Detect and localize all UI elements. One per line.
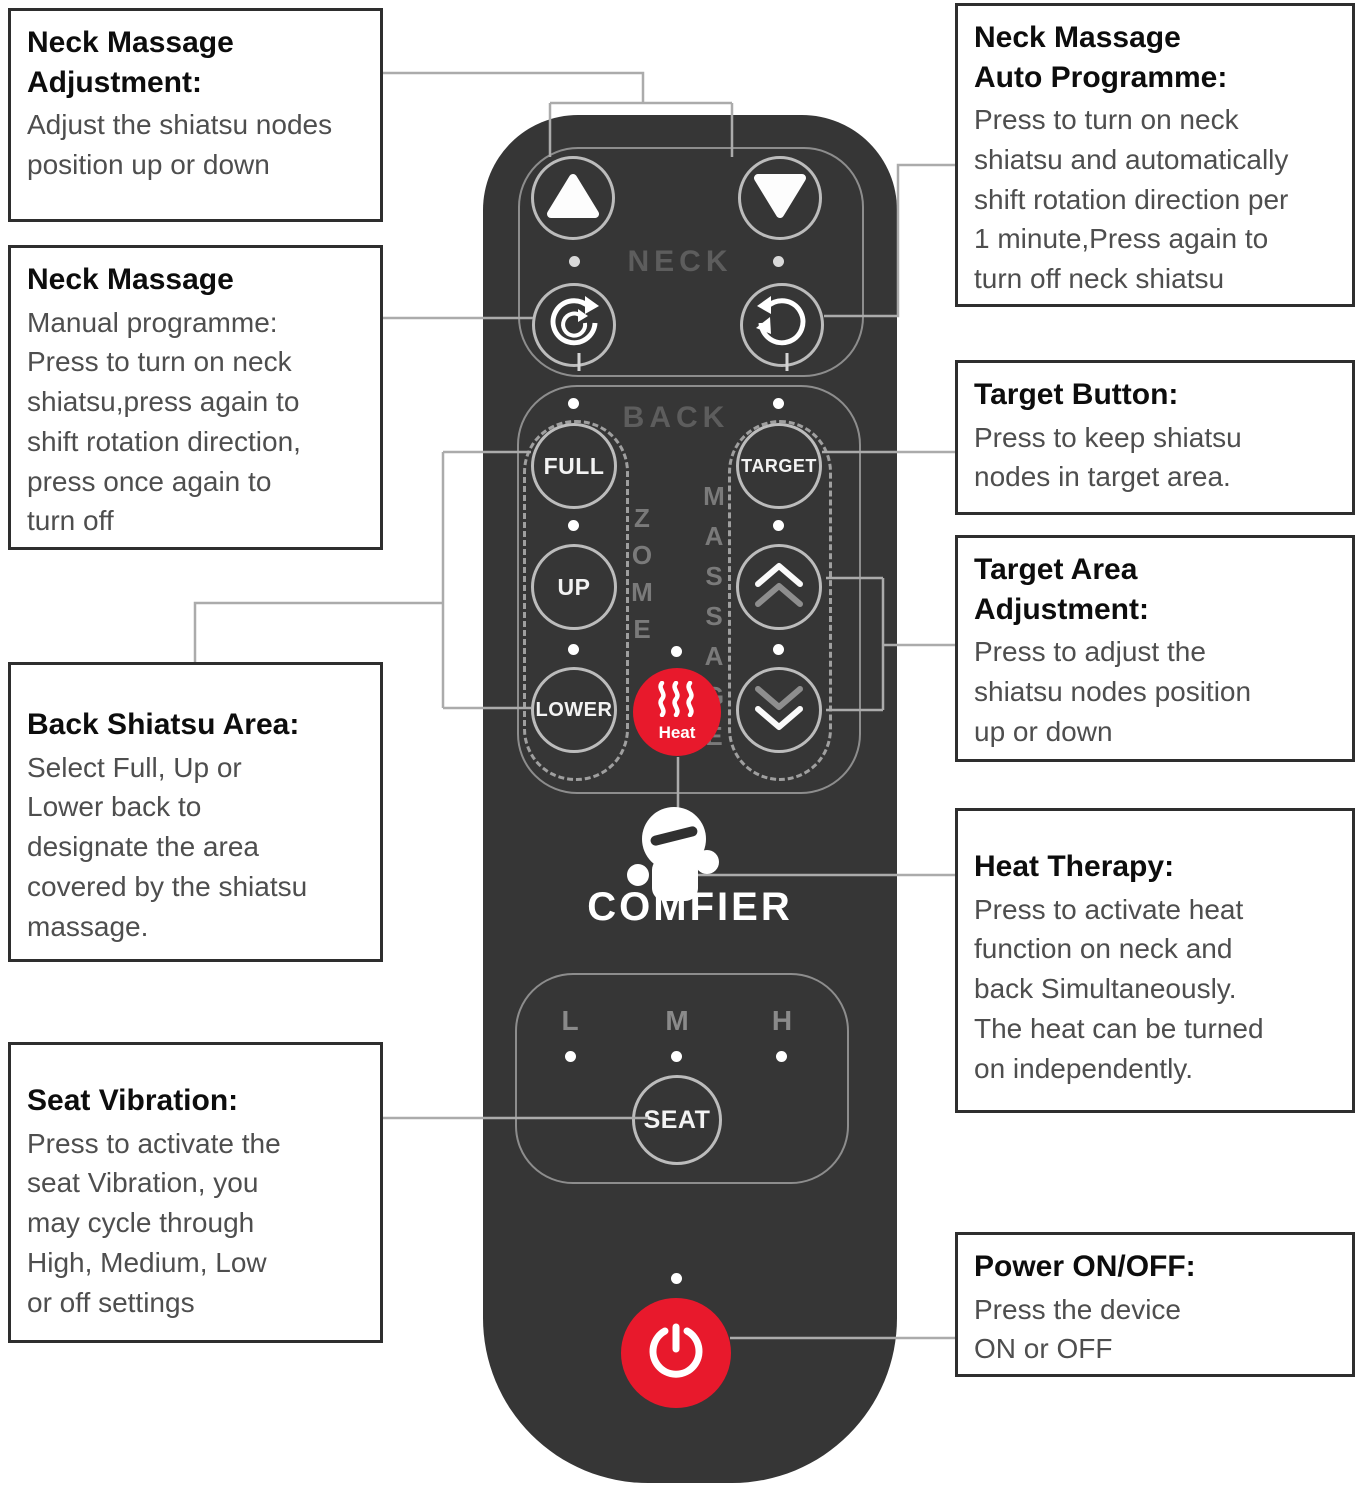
callout-body: Press to adjust the shiatsu nodes positi… (974, 632, 1336, 751)
callout-body: Adjust the shiatsu nodes position up or … (27, 105, 364, 185)
callout-seat-vibration: Seat Vibration: Press to activate the se… (8, 1042, 383, 1343)
callout-body: Press the device ON or OFF (974, 1290, 1336, 1370)
led-dot (569, 256, 580, 267)
led-dot (773, 644, 784, 655)
heat-button[interactable]: Heat (633, 668, 721, 756)
led-dot (568, 520, 579, 531)
zone-vertical-label: ZOME (626, 503, 657, 651)
power-icon (645, 1320, 707, 1387)
callout-power-on-off: Power ON/OFF: Press the device ON or OFF (955, 1232, 1355, 1377)
callout-title: Neck Massage (27, 260, 364, 300)
seat-low-label: L (555, 1005, 585, 1037)
target-button[interactable]: TARGET (736, 423, 822, 509)
heat-button-label: Heat (659, 723, 696, 743)
seat-medium-label: M (662, 1005, 692, 1037)
chevron-double-down-icon (751, 682, 807, 739)
led-dot (776, 1051, 787, 1062)
full-button-label: FULL (544, 453, 605, 480)
callout-body: Press to turn on neck shiatsu and automa… (974, 100, 1336, 299)
triangle-down-icon (754, 173, 806, 224)
led-dot (568, 398, 579, 409)
led-dot (773, 256, 784, 267)
back-up-button[interactable]: UP (531, 544, 617, 630)
callout-title: Heat Therapy: (974, 847, 1336, 887)
target-button-label: TARGET (741, 456, 817, 477)
seat-button[interactable]: SEAT (632, 1075, 722, 1165)
led-dot (773, 398, 784, 409)
callout-body: Press to keep shiatsu nodes in target ar… (974, 418, 1336, 498)
lower-button-label: LOWER (536, 699, 613, 722)
callout-title: Neck Massage Adjustment: (27, 23, 364, 102)
neck-manual-rotate-button[interactable] (532, 283, 616, 367)
callout-neck-massage-adjustment: Neck Massage Adjustment: Adjust the shia… (8, 8, 383, 222)
callout-title: Seat Vibration: (27, 1081, 364, 1121)
callout-neck-massage-manual: Neck Massage Manual programme: Press to … (8, 245, 383, 550)
led-dot (671, 1273, 682, 1284)
target-area-down-button[interactable] (736, 667, 822, 753)
callout-title: Power ON/OFF: (974, 1247, 1336, 1287)
callout-title: Target Area Adjustment: (974, 550, 1336, 629)
callout-title: Neck Massage Auto Programme: (974, 18, 1336, 97)
rotate-manual-icon (545, 294, 603, 357)
chevron-double-up-icon (751, 559, 807, 616)
remote-control: NECK BAC (483, 115, 897, 1483)
back-full-button[interactable]: FULL (531, 423, 617, 509)
callout-back-shiatsu-area: Back Shiatsu Area: Select Full, Up or Lo… (8, 662, 383, 962)
back-section-label: BACK (603, 401, 749, 435)
neck-down-button[interactable] (738, 156, 822, 240)
callout-heat-therapy: Heat Therapy: Press to activate heat fun… (955, 808, 1355, 1113)
led-dot (671, 1051, 682, 1062)
neck-auto-rotate-button[interactable] (740, 283, 824, 367)
led-dot (773, 520, 784, 531)
target-area-up-button[interactable] (736, 544, 822, 630)
callout-title: Target Button: (974, 375, 1336, 415)
callout-target-area-adjustment: Target Area Adjustment: Press to adjust … (955, 535, 1355, 762)
back-lower-button[interactable]: LOWER (531, 667, 617, 753)
triangle-up-icon (547, 173, 599, 224)
power-button[interactable] (621, 1298, 731, 1408)
brand-wordmark: COMFIER (483, 885, 897, 930)
seat-high-label: H (767, 1005, 797, 1037)
callout-target-button: Target Button: Press to keep shiatsu nod… (955, 360, 1355, 515)
callout-body: Select Full, Up or Lower back to designa… (27, 748, 364, 947)
callout-body: Press to activate the seat Vibration, yo… (27, 1124, 364, 1323)
led-dot (565, 1051, 576, 1062)
callout-title: Back Shiatsu Area: (27, 705, 364, 745)
led-dot (671, 646, 682, 657)
neck-section-label: NECK (607, 245, 753, 279)
rotate-auto-icon (753, 294, 811, 357)
heat-icon (654, 681, 700, 722)
led-dot (568, 644, 579, 655)
callout-body: Press to activate heat function on neck … (974, 890, 1336, 1089)
callout-neck-massage-auto: Neck Massage Auto Programme: Press to tu… (955, 3, 1355, 307)
seat-button-label: SEAT (644, 1106, 711, 1135)
neck-up-button[interactable] (531, 156, 615, 240)
up-button-label: UP (558, 574, 591, 601)
callout-body: Manual programme: Press to turn on neck … (27, 303, 364, 542)
